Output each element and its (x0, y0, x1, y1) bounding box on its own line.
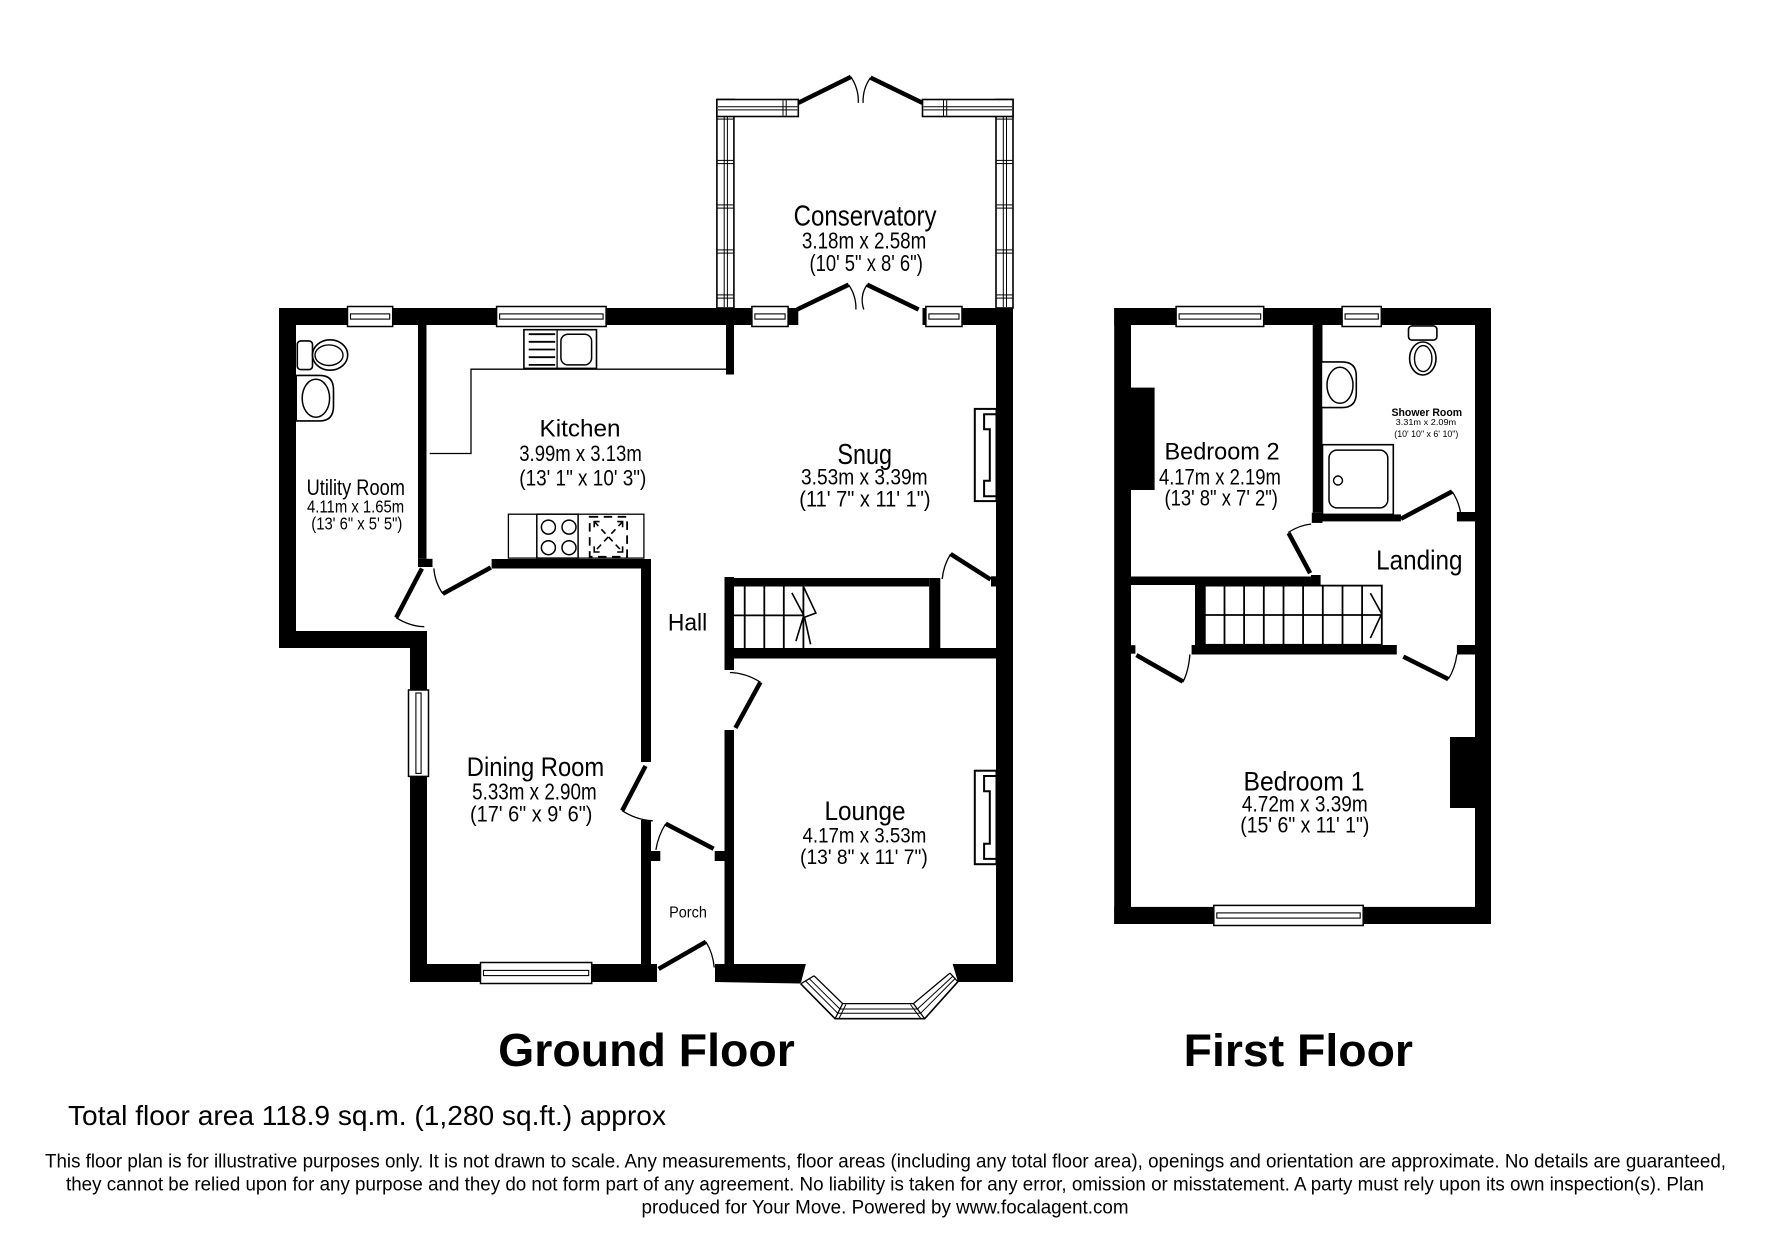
svg-text:Total floor area 118.9 sq.m. (: Total floor area 118.9 sq.m. (1,280 sq.f… (68, 1100, 666, 1131)
svg-text:Bedroom 2: Bedroom 2 (1164, 439, 1279, 466)
svg-text:4.17m x 3.53m: 4.17m x 3.53m (803, 824, 927, 847)
svg-text:Lounge: Lounge (824, 796, 905, 826)
svg-text:(13' 1" x 10' 3"): (13' 1" x 10' 3") (519, 465, 646, 490)
svg-text:produced for Your Move. Powere: produced for Your Move. Powered by www.f… (642, 1198, 1129, 1219)
svg-text:(13' 6" x 5' 5"): (13' 6" x 5' 5") (311, 514, 402, 534)
svg-text:Ground Floor: Ground Floor (498, 1024, 795, 1076)
svg-text:(15' 6" x 11' 1"): (15' 6" x 11' 1") (1240, 812, 1369, 837)
svg-text:(17' 6" x 9' 6"): (17' 6" x 9' 6") (470, 802, 592, 827)
svg-text:Hall: Hall (668, 610, 707, 637)
svg-text:(11' 7" x 11' 1"): (11' 7" x 11' 1") (799, 487, 930, 512)
svg-text:First Floor: First Floor (1184, 1025, 1414, 1076)
svg-text:3.31m x 2.09m: 3.31m x 2.09m (1396, 417, 1457, 427)
svg-text:(13' 8" x 7' 2"): (13' 8" x 7' 2") (1164, 486, 1278, 511)
svg-text:they cannot be relied upon for: they cannot be relied upon for any purpo… (66, 1175, 1704, 1196)
svg-text:Dining Room: Dining Room (467, 752, 604, 782)
svg-text:Porch: Porch (669, 905, 707, 922)
svg-text:(10' 10" x 6' 10"): (10' 10" x 6' 10") (1394, 429, 1458, 439)
svg-text:3.99m x 3.13m: 3.99m x 3.13m (519, 441, 642, 466)
svg-text:This floor plan is for illustr: This floor plan is for illustrative purp… (45, 1152, 1726, 1173)
svg-text:Kitchen: Kitchen (540, 416, 621, 443)
svg-text:Landing: Landing (1376, 545, 1462, 576)
svg-text:(13' 8" x 11' 7"): (13' 8" x 11' 7") (800, 846, 928, 869)
svg-text:(10' 5" x 8' 6"): (10' 5" x 8' 6") (810, 250, 923, 276)
